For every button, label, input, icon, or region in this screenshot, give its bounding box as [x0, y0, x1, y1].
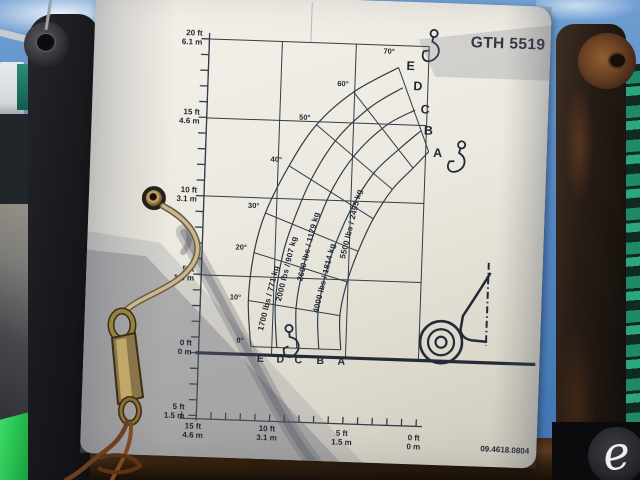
lanyard-cable-and-snap-hook	[0, 0, 640, 480]
watermark-letter: e	[599, 428, 632, 477]
watermark-logo: e	[588, 427, 640, 480]
photo-of-load-chart-placard: GTH 5519 09.4618.0804 20 ft6.1 m15 ft4.6…	[0, 0, 640, 480]
